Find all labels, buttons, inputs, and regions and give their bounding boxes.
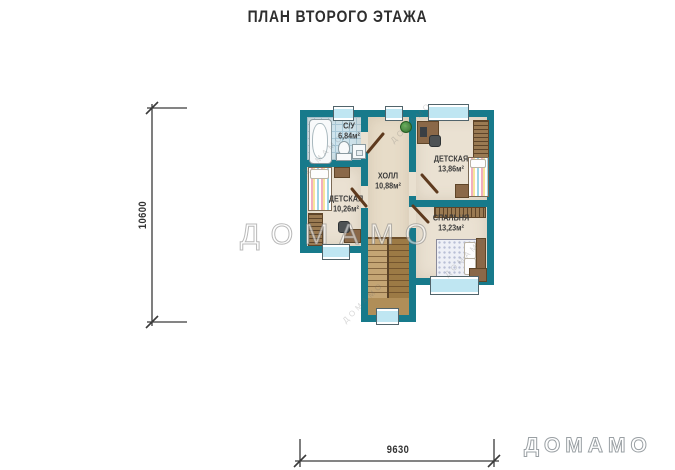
window (333, 106, 354, 121)
window (385, 106, 403, 121)
sink (352, 144, 366, 159)
side-table (334, 167, 350, 178)
dimension-vertical: 10600 (137, 201, 149, 229)
floor-plan-page: ПЛАН ВТОРОГО ЭТАЖА (0, 0, 675, 470)
room-label-nursery-right: ДЕТСКАЯ 13,86м² (434, 155, 468, 174)
room-area: 10,26м² (329, 204, 363, 214)
door-opening (409, 172, 416, 196)
wardrobe-nursery-right (473, 120, 489, 159)
window (376, 308, 399, 325)
room-area: 13,86м² (434, 164, 468, 174)
dimension-horizontal: 9630 (387, 444, 410, 456)
room-name: ХОЛЛ (375, 172, 401, 182)
window (430, 276, 479, 295)
room-name: ДЕТСКАЯ (434, 155, 468, 165)
room-name: С/У (338, 122, 360, 132)
room-name: ДЕТСКАЯ (329, 195, 363, 205)
room-label-nursery-left: ДЕТСКАЯ 10,26м² (329, 195, 363, 214)
monitor-icon (420, 127, 427, 137)
watermark-center: ДОМАМО (240, 219, 440, 252)
page-title: ПЛАН ВТОРОГО ЭТАЖА (61, 7, 615, 27)
chair-nursery-right (429, 135, 441, 147)
window (428, 104, 469, 121)
pillow (470, 159, 486, 168)
room-label-hall: ХОЛЛ 10,88м² (375, 172, 401, 191)
room-area: 10,88м² (375, 181, 401, 191)
toilet-tank (336, 153, 352, 161)
sink-basin (356, 150, 363, 156)
brand-logo: ДОМАМО (524, 434, 652, 458)
nightstand (455, 184, 469, 198)
